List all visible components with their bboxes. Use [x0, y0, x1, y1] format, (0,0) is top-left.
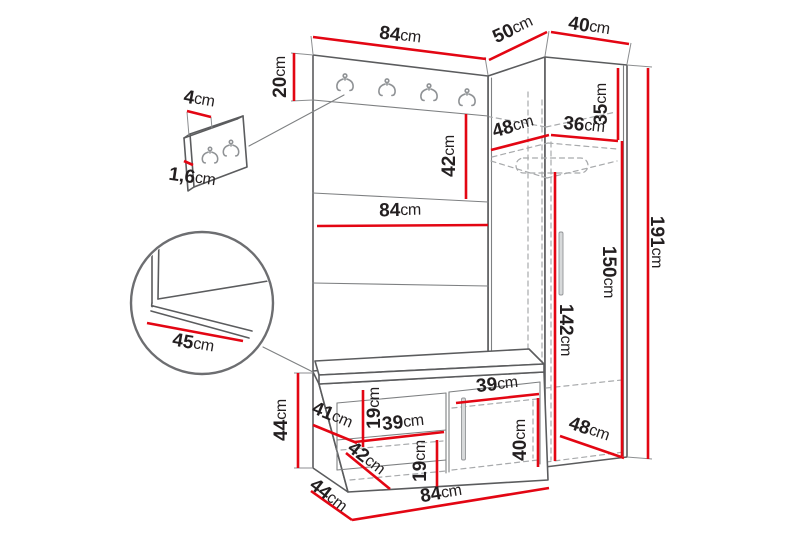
dim-label-corner-top-height: 35cm [591, 83, 612, 125]
dim-label-right-compartment-height: 40cm [510, 419, 531, 461]
dim-label-lower-shelf-height: 19cm [410, 440, 431, 482]
wardrobe-door-handle [559, 232, 563, 295]
dimension-line-hook-panel-depth [187, 111, 211, 117]
dim-label-corner-front-width: 50cm [489, 11, 536, 48]
dim-label-bench-height: 44cm [271, 399, 292, 441]
dim-label-main-width-top: 84cm [378, 23, 422, 49]
detail-circle-leader-line [263, 347, 313, 372]
dim-label-hook-panel-depth: 4cm [182, 86, 216, 112]
dim-label-main-width-middle: 84cm [379, 200, 421, 222]
dim-label-front-height: 150cm [598, 246, 619, 298]
dim-label-hanging-height: 142cm [555, 304, 576, 356]
bench-door-handle [462, 398, 466, 460]
furniture-dimension-diagram: 84cm 50cm 40cm 20cm 4cm 1,6cm 42cm 84cm … [0, 0, 800, 533]
dim-label-upholstered-panel-height: 42cm [439, 135, 460, 177]
dim-label-total-height: 191cm [646, 216, 667, 268]
dimension-line-main-width-middle [317, 225, 488, 226]
dim-label-hook-rail-height: 20cm [270, 56, 291, 98]
